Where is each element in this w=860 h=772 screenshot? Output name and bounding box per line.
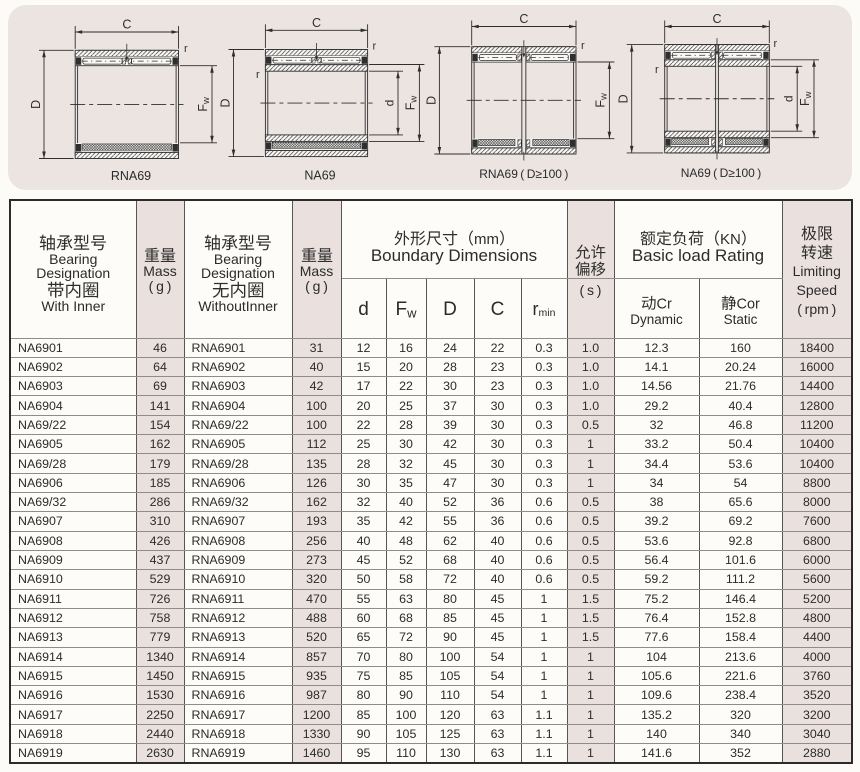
svg-text:C: C xyxy=(712,12,721,26)
svg-text:KN: KN xyxy=(720,231,741,246)
svg-text:r: r xyxy=(581,40,585,52)
svg-text:r: r xyxy=(655,64,659,76)
svg-text:mm: mm xyxy=(474,231,499,246)
svg-text:Fw: Fw xyxy=(403,96,419,111)
svg-text:Fw: Fw xyxy=(798,91,814,106)
svg-text:RNA69: RNA69 xyxy=(111,169,151,183)
svg-text:r: r xyxy=(774,38,778,50)
svg-text:Cr: Cr xyxy=(657,296,672,310)
svg-text:C: C xyxy=(122,18,131,32)
svg-text:d: d xyxy=(383,100,397,107)
svg-text:r: r xyxy=(373,41,377,53)
svg-text:D: D xyxy=(617,94,631,103)
svg-text:NA69: NA69 xyxy=(304,169,335,183)
svg-text:D: D xyxy=(219,98,233,107)
svg-text:Cor: Cor xyxy=(737,296,760,310)
svg-text:r: r xyxy=(256,69,260,81)
svg-text:C: C xyxy=(519,12,528,26)
svg-text:C: C xyxy=(312,16,321,30)
svg-text:D: D xyxy=(29,100,43,109)
svg-text:RNA69 ( D≥100 ): RNA69 ( D≥100 ) xyxy=(479,167,568,181)
svg-text:d: d xyxy=(782,95,796,102)
svg-text:Fw: Fw xyxy=(593,93,609,108)
svg-text:D: D xyxy=(424,96,438,105)
svg-text:r: r xyxy=(184,43,188,55)
svg-text:Fw: Fw xyxy=(196,97,212,112)
svg-text:NA69 ( D≥100 ): NA69 ( D≥100 ) xyxy=(681,166,762,180)
